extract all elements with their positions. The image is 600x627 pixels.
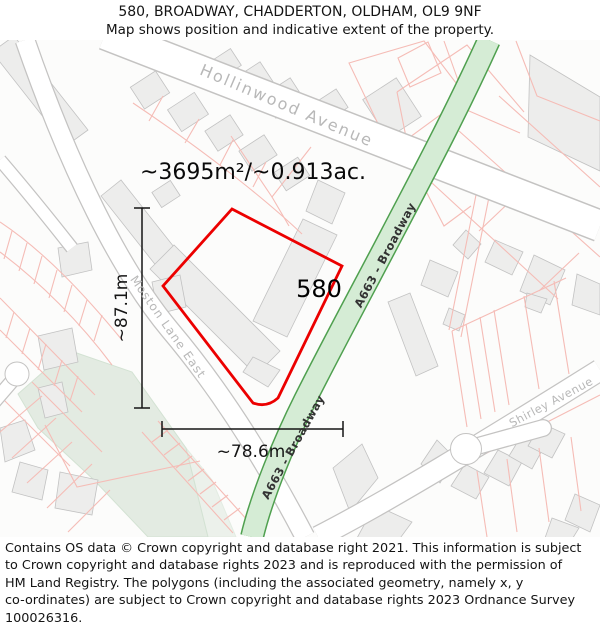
footer-line: to Crown copyright and database rights 2… — [5, 557, 594, 574]
footer-line: 100026316. — [5, 610, 594, 627]
footer-line: Contains OS data © Crown copyright and d… — [5, 540, 594, 557]
area-label: ~3695m²/~0.913ac. — [140, 160, 366, 185]
footer-line: HM Land Registry. The polygons (includin… — [5, 575, 594, 592]
property-number-label: 580 — [296, 275, 342, 303]
footer-line: co-ordinates) are subject to Crown copyr… — [5, 592, 594, 609]
header: 580, BROADWAY, CHADDERTON, OLDHAM, OL9 9… — [0, 0, 600, 40]
footer-copyright: Contains OS data © Crown copyright and d… — [0, 537, 600, 625]
page-subtitle: Map shows position and indicative extent… — [0, 22, 600, 38]
map-canvas: Hollinwood Avenue Moston Lane East Shirl… — [0, 0, 600, 625]
page-title: 580, BROADWAY, CHADDERTON, OLDHAM, OL9 9… — [0, 4, 600, 20]
height-label: ~87.1m — [112, 274, 132, 343]
width-label: ~78.6m — [217, 442, 286, 462]
